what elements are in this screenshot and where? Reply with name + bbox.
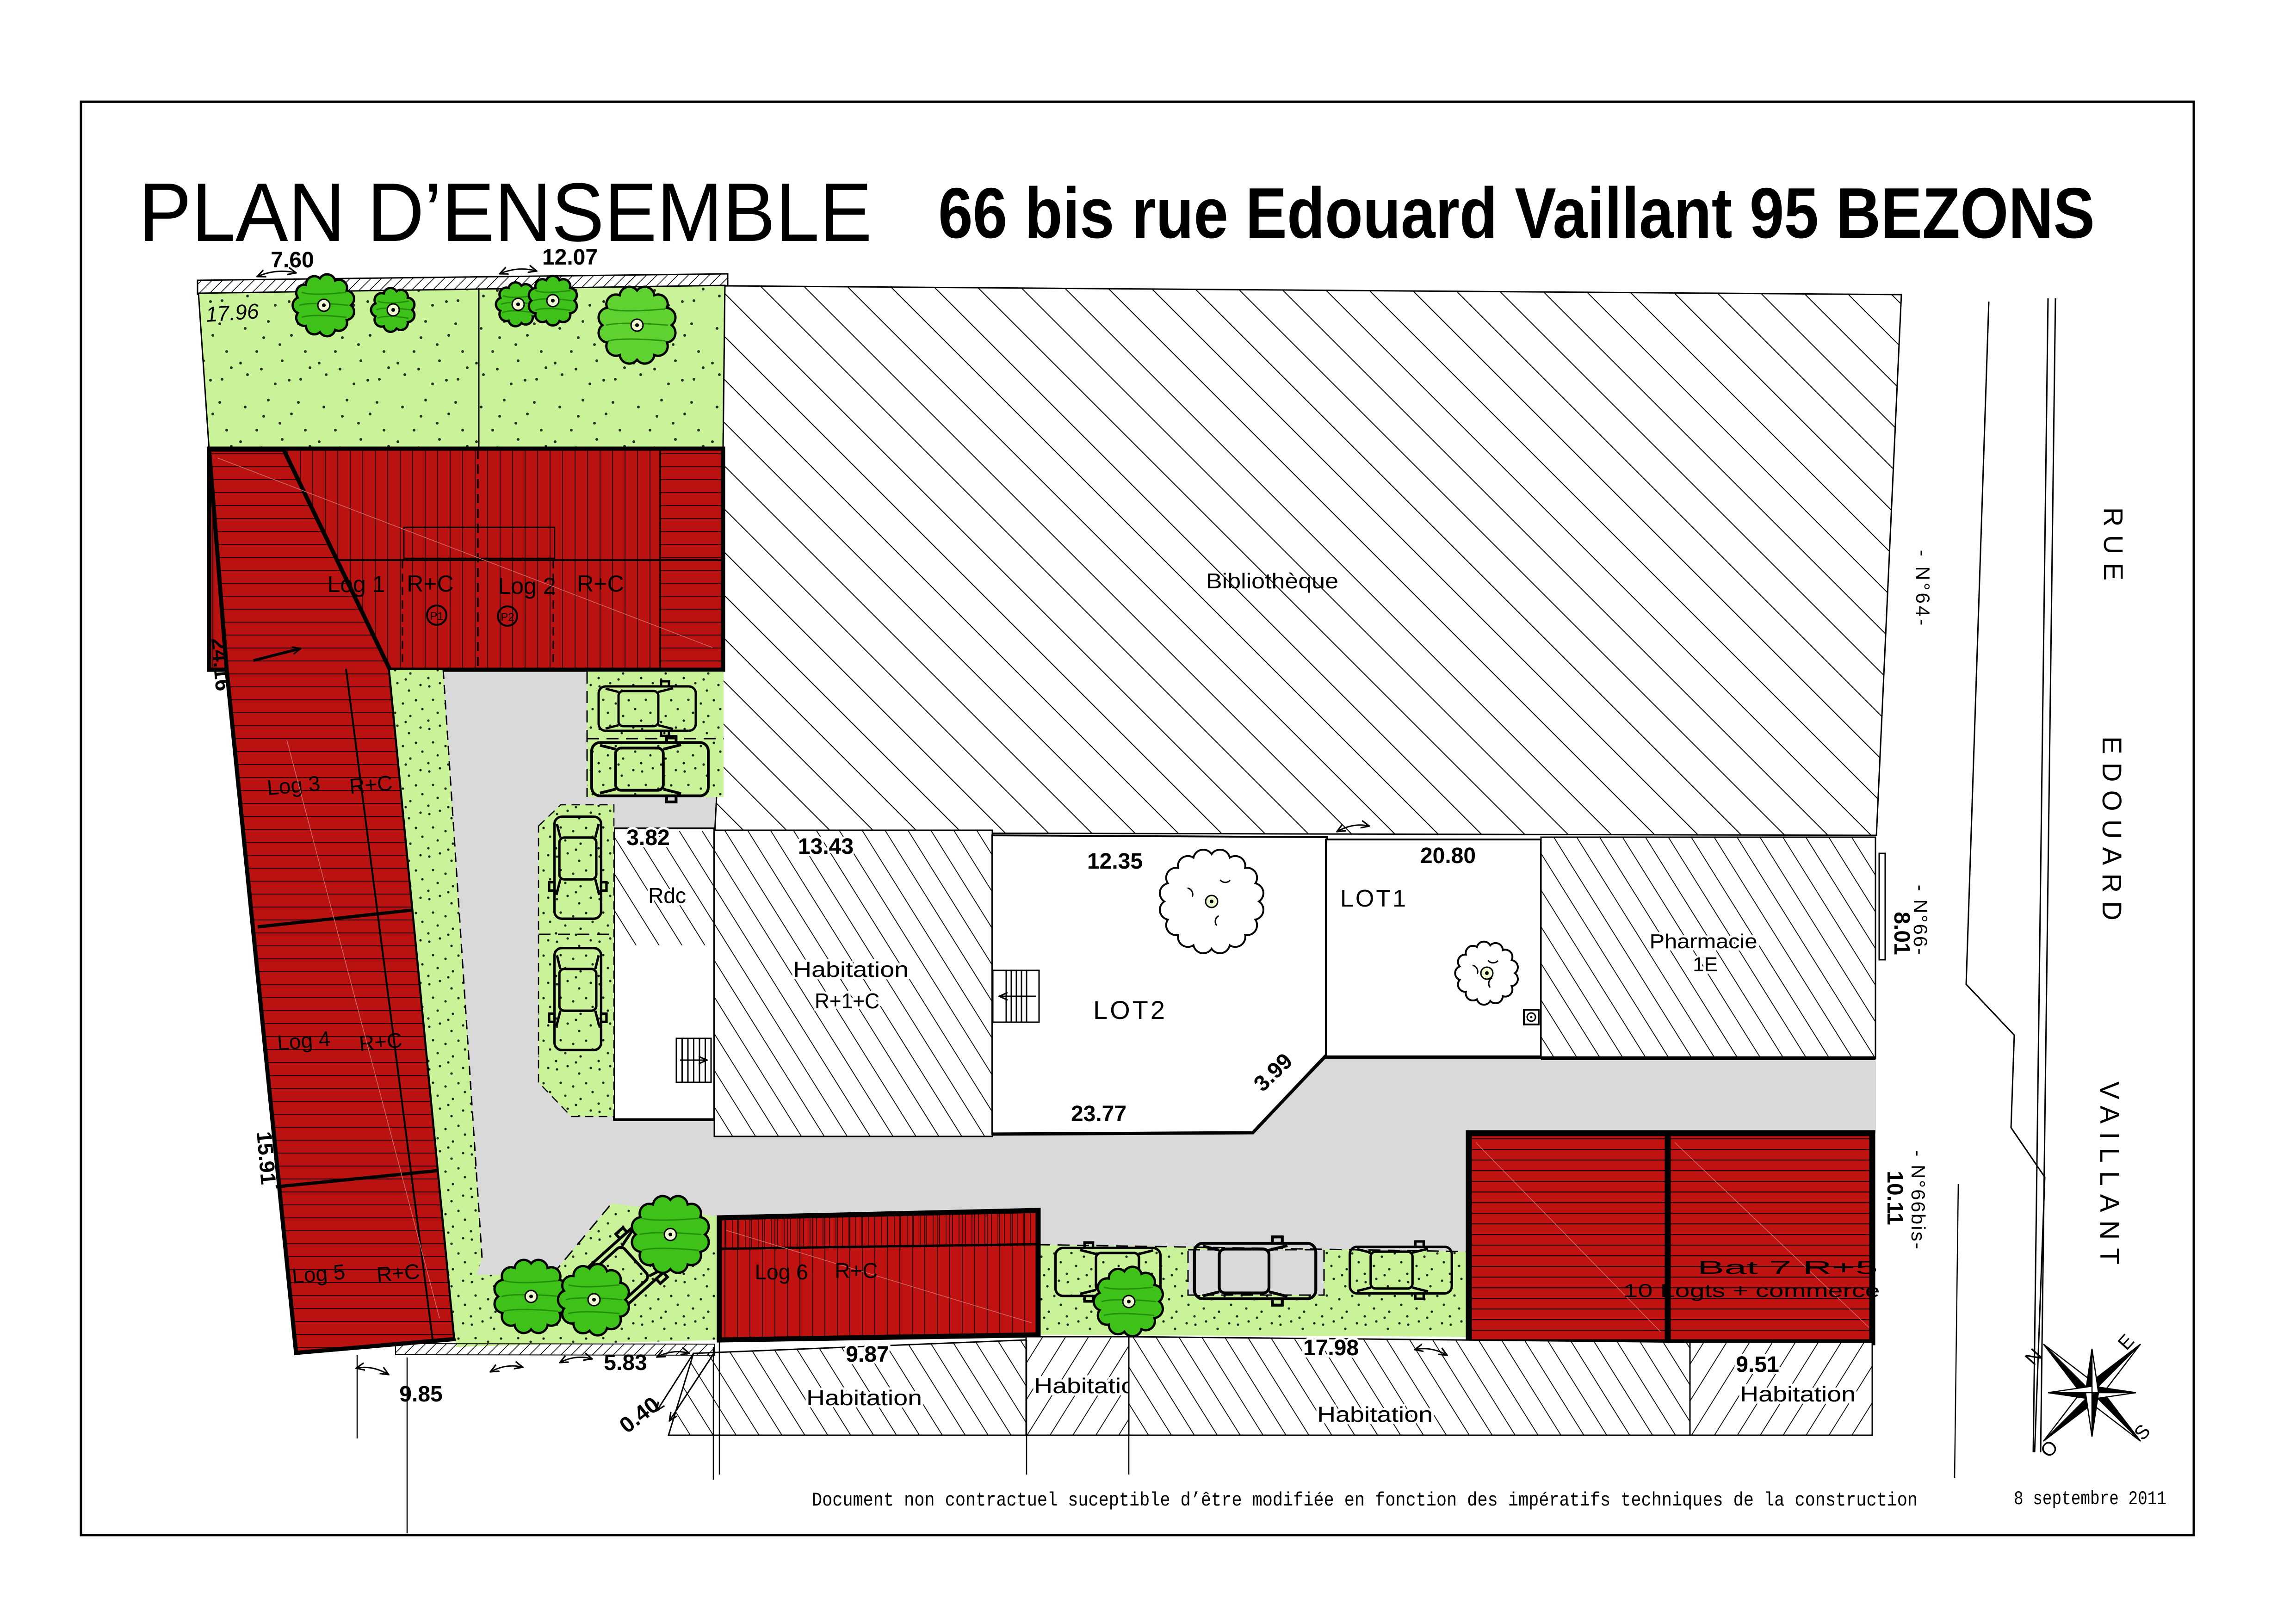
svg-text:Log 1: Log 1: [327, 571, 385, 597]
svg-text:Log 3: Log 3: [266, 771, 321, 800]
svg-text:RUE: RUE: [2098, 507, 2128, 589]
svg-text:- N°66bis-: - N°66bis-: [1907, 1150, 1929, 1250]
svg-text:13.43: 13.43: [798, 834, 854, 859]
svg-text:17.96: 17.96: [205, 299, 260, 327]
svg-text:R+C: R+C: [835, 1259, 878, 1283]
svg-text:Bat 7 R+5: Bat 7 R+5: [1697, 1258, 1878, 1278]
svg-text:9.85: 9.85: [399, 1382, 442, 1407]
svg-text:20.80: 20.80: [1420, 844, 1476, 868]
svg-text:12.07: 12.07: [542, 245, 598, 270]
svg-text:P2: P2: [501, 611, 514, 623]
svg-text:PLAN D’ENSEMBLE: PLAN D’ENSEMBLE: [139, 166, 872, 259]
svg-text:VAILLANT: VAILLANT: [2094, 1081, 2124, 1273]
svg-text:R+1+C: R+1+C: [815, 989, 879, 1013]
svg-text:66 bis rue Edouard Vaillant 95: 66 bis rue Edouard Vaillant 95 BEZONS: [938, 173, 2095, 253]
svg-text:- N°64-: - N°64-: [1912, 550, 1934, 628]
svg-text:R+C: R+C: [376, 1259, 421, 1287]
svg-text:Log 6: Log 6: [755, 1260, 808, 1284]
svg-text:Habitation: Habitation: [806, 1386, 922, 1410]
svg-text:LOT2: LOT2: [1093, 995, 1167, 1024]
svg-text:Habitation: Habitation: [1317, 1402, 1433, 1426]
svg-text:8.01: 8.01: [1889, 912, 1914, 955]
svg-text:LOT1: LOT1: [1340, 885, 1408, 912]
svg-text:9.87: 9.87: [846, 1342, 889, 1367]
svg-text:R+C: R+C: [348, 771, 393, 798]
svg-text:Bibliothèque: Bibliothèque: [1206, 569, 1338, 593]
svg-text:EDOUARD: EDOUARD: [2097, 736, 2127, 929]
svg-text:23.77: 23.77: [1071, 1102, 1126, 1126]
svg-text:Rdc: Rdc: [648, 883, 686, 907]
svg-text:Log 2: Log 2: [498, 573, 556, 599]
svg-text:17.98: 17.98: [1303, 1336, 1359, 1360]
svg-text:10.11: 10.11: [1882, 1171, 1907, 1225]
svg-text:P1: P1: [430, 610, 443, 623]
svg-text:Log 5: Log 5: [291, 1259, 346, 1288]
svg-text:Pharmacie: Pharmacie: [1650, 930, 1758, 953]
svg-text:8 septembre 2011: 8 septembre 2011: [2014, 1488, 2166, 1510]
svg-text:R+C: R+C: [577, 571, 624, 597]
svg-text:7.60: 7.60: [271, 248, 314, 272]
svg-text:1E: 1E: [1693, 953, 1718, 976]
svg-text:5.83: 5.83: [604, 1351, 647, 1375]
svg-text:3.82: 3.82: [626, 826, 669, 850]
svg-text:R+C: R+C: [407, 571, 453, 597]
svg-text:R+C: R+C: [358, 1028, 403, 1055]
svg-text:15.91: 15.91: [252, 1130, 281, 1185]
svg-text:10 Logts + commerce: 10 Logts + commerce: [1623, 1281, 1880, 1301]
svg-text:Log 4: Log 4: [276, 1026, 331, 1055]
svg-text:Document non contractuel sucep: Document non contractuel suceptible d’êt…: [812, 1489, 1918, 1512]
svg-text:12.35: 12.35: [1087, 849, 1143, 874]
svg-text:Habitation: Habitation: [793, 957, 909, 981]
svg-text:Habitation: Habitation: [1740, 1382, 1856, 1406]
svg-text:24.16: 24.16: [207, 637, 235, 692]
svg-text:9.51: 9.51: [1736, 1352, 1779, 1377]
